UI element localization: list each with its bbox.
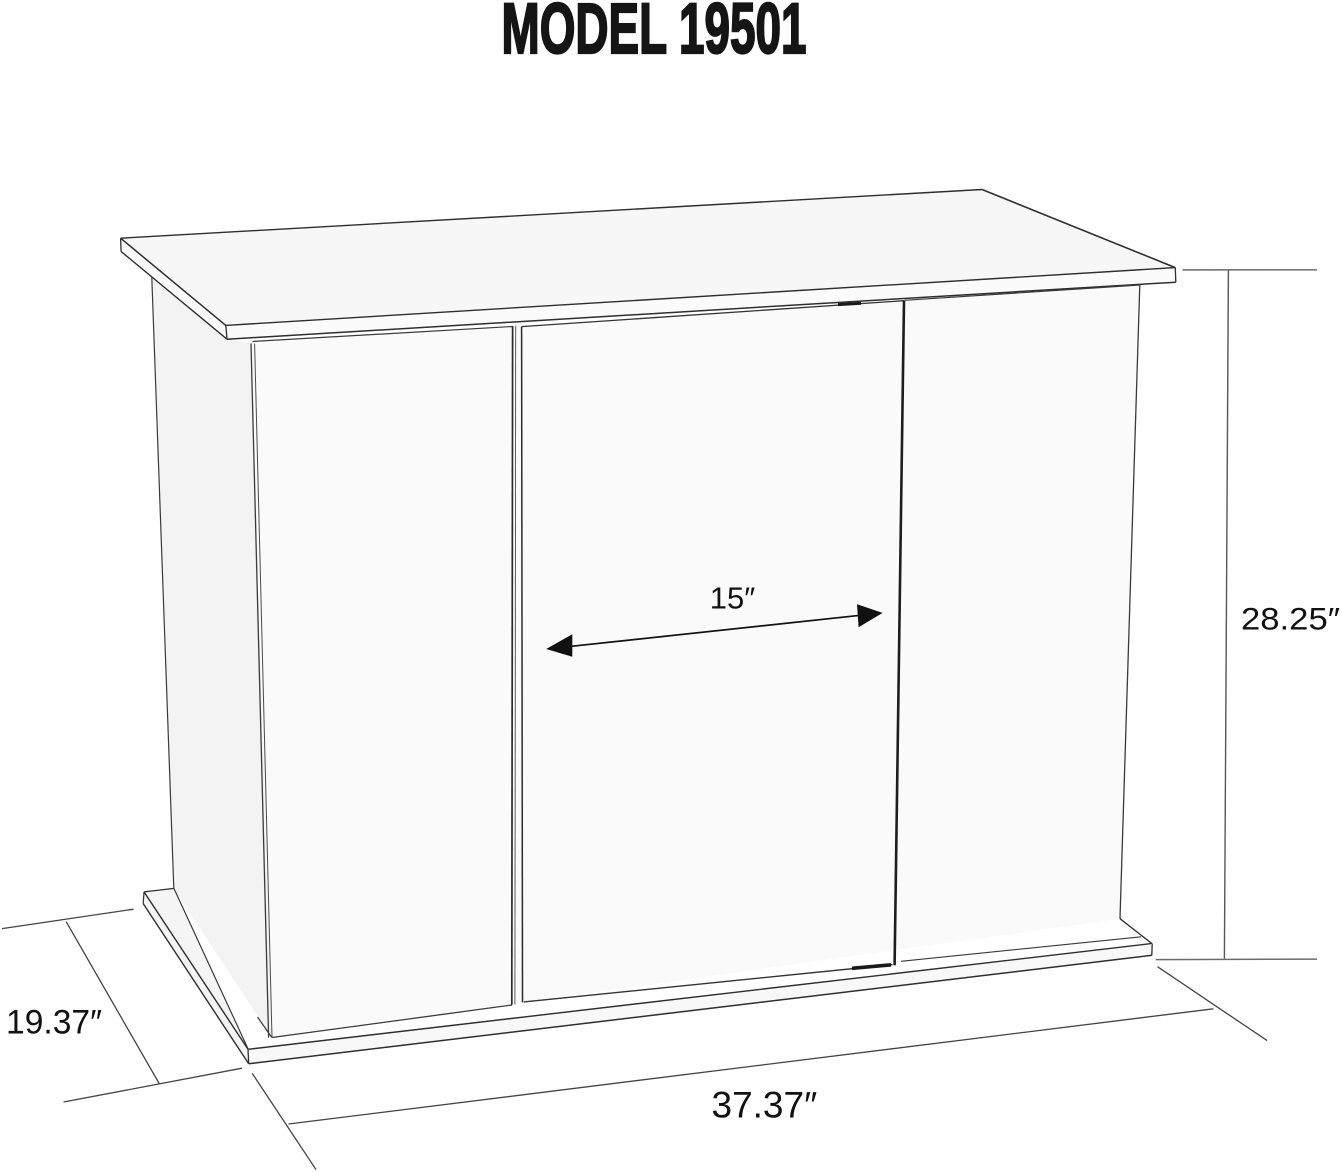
svg-text:28.25″: 28.25″ [1241, 601, 1340, 637]
svg-text:15″: 15″ [710, 581, 755, 616]
svg-text:37.37″: 37.37″ [712, 1085, 818, 1126]
svg-text:MODEL 19501: MODEL 19501 [502, 0, 807, 69]
svg-text:19.37″: 19.37″ [6, 1004, 102, 1042]
